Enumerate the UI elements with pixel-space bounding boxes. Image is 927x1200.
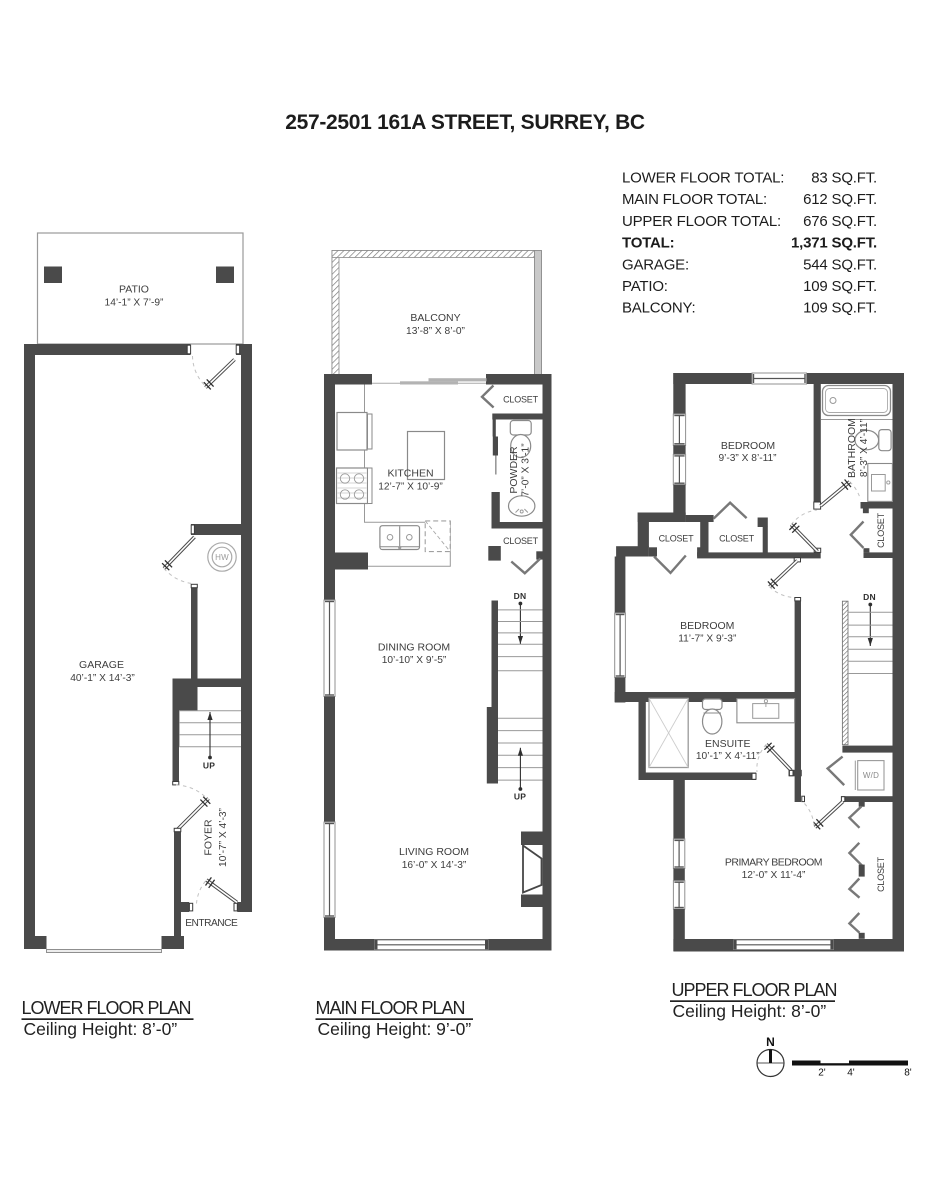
svg-text:CLOSET: CLOSET <box>659 534 695 544</box>
svg-text:GARAGE:: GARAGE: <box>622 256 689 273</box>
svg-text:PATIO:: PATIO: <box>622 278 668 295</box>
svg-text:BEDROOM: BEDROOM <box>680 620 734 632</box>
svg-text:KITCHEN: KITCHEN <box>387 468 433 480</box>
svg-text:UP: UP <box>203 761 215 771</box>
svg-text:10’-7” X 4’-3”: 10’-7” X 4’-3” <box>218 807 229 866</box>
svg-text:PATIO: PATIO <box>119 284 149 296</box>
svg-text:BEDROOM: BEDROOM <box>721 440 775 452</box>
svg-text:ENSUITE: ENSUITE <box>705 738 751 750</box>
svg-text:MAIN FLOOR TOTAL:: MAIN FLOOR TOTAL: <box>622 191 767 208</box>
svg-text:12’-0” X 11’-4”: 12’-0” X 11’-4” <box>742 870 806 881</box>
svg-text:CLOSET: CLOSET <box>876 512 886 548</box>
svg-text:POWDER: POWDER <box>508 446 520 494</box>
svg-text:HW: HW <box>215 553 229 562</box>
svg-text:109 SQ.FT.: 109 SQ.FT. <box>803 300 877 317</box>
svg-text:16’-0” X 14’-3”: 16’-0” X 14’-3” <box>402 860 467 871</box>
svg-text:BALCONY: BALCONY <box>410 312 460 324</box>
svg-text:BALCONY:: BALCONY: <box>622 300 695 317</box>
svg-text:40’-1” X 14’-3”: 40’-1” X 14’-3” <box>70 673 135 684</box>
svg-text:ENTRANCE: ENTRANCE <box>185 918 238 929</box>
svg-text:LIVING ROOM: LIVING ROOM <box>399 846 469 858</box>
svg-text:11’-7” X 9’-3”: 11’-7” X 9’-3” <box>678 634 737 645</box>
svg-text:Ceiling Height: 9’-0”: Ceiling Height: 9’-0” <box>318 1019 472 1039</box>
svg-text:7’-0” X 3’-1”: 7’-0” X 3’-1” <box>521 443 532 497</box>
svg-text:12’-7” X 10’-9”: 12’-7” X 10’-9” <box>378 482 443 493</box>
svg-text:CLOSET: CLOSET <box>503 395 539 405</box>
svg-text:N: N <box>766 1035 775 1049</box>
svg-text:MAIN FLOOR PLAN: MAIN FLOOR PLAN <box>316 998 465 1018</box>
svg-text:UPPER FLOOR TOTAL:: UPPER FLOOR TOTAL: <box>622 213 781 230</box>
svg-text:8': 8' <box>904 1068 912 1079</box>
svg-text:676 SQ.FT.: 676 SQ.FT. <box>803 213 877 230</box>
svg-text:DN: DN <box>514 591 527 601</box>
svg-text:8’-3” X 4’-11”: 8’-3” X 4’-11” <box>859 418 870 477</box>
svg-text:10’-1” X 4’-11”: 10’-1” X 4’-11” <box>696 751 760 762</box>
svg-text:CLOSET: CLOSET <box>503 536 539 546</box>
svg-text:13’-8” X 8’-0”: 13’-8” X 8’-0” <box>406 326 465 337</box>
svg-text:83 SQ.FT.: 83 SQ.FT. <box>811 170 877 187</box>
svg-text:LOWER FLOOR PLAN: LOWER FLOOR PLAN <box>22 998 191 1018</box>
svg-text:612 SQ.FT.: 612 SQ.FT. <box>803 191 877 208</box>
svg-text:BATHROOM: BATHROOM <box>846 418 858 478</box>
svg-text:CLOSET: CLOSET <box>719 534 755 544</box>
svg-text:PRIMARY BEDROOM: PRIMARY BEDROOM <box>725 857 822 869</box>
svg-text:GARAGE: GARAGE <box>79 659 124 671</box>
svg-text:1,371 SQ.FT.: 1,371 SQ.FT. <box>791 235 877 252</box>
svg-text:14’-1” X 7’-9”: 14’-1” X 7’-9” <box>105 298 164 309</box>
svg-text:9’-3” X 8’-11”: 9’-3” X 8’-11” <box>718 453 777 464</box>
svg-text:2': 2' <box>818 1068 826 1079</box>
svg-text:10’-10” X 9’-5”: 10’-10” X 9’-5” <box>382 655 447 666</box>
svg-text:544 SQ.FT.: 544 SQ.FT. <box>803 256 877 273</box>
svg-text:Ceiling Height: 8’-0”: Ceiling Height: 8’-0” <box>24 1019 178 1039</box>
svg-text:109 SQ.FT.: 109 SQ.FT. <box>803 278 877 295</box>
svg-text:257-2501 161A STREET, SURREY,: 257-2501 161A STREET, SURREY, BC <box>285 111 645 134</box>
svg-text:UP: UP <box>514 792 526 802</box>
svg-text:LOWER FLOOR TOTAL:: LOWER FLOOR TOTAL: <box>622 170 784 187</box>
svg-text:DN: DN <box>863 592 876 602</box>
svg-text:UPPER FLOOR PLAN: UPPER FLOOR PLAN <box>672 980 837 1000</box>
svg-text:CLOSET: CLOSET <box>876 856 886 892</box>
svg-text:W/D: W/D <box>863 771 879 780</box>
svg-text:Ceiling Height: 8’-0”: Ceiling Height: 8’-0” <box>673 1001 827 1021</box>
svg-text:TOTAL:: TOTAL: <box>622 235 674 252</box>
svg-text:DINING ROOM: DINING ROOM <box>378 642 450 654</box>
svg-text:4': 4' <box>847 1068 855 1079</box>
svg-text:FOYER: FOYER <box>202 819 214 856</box>
